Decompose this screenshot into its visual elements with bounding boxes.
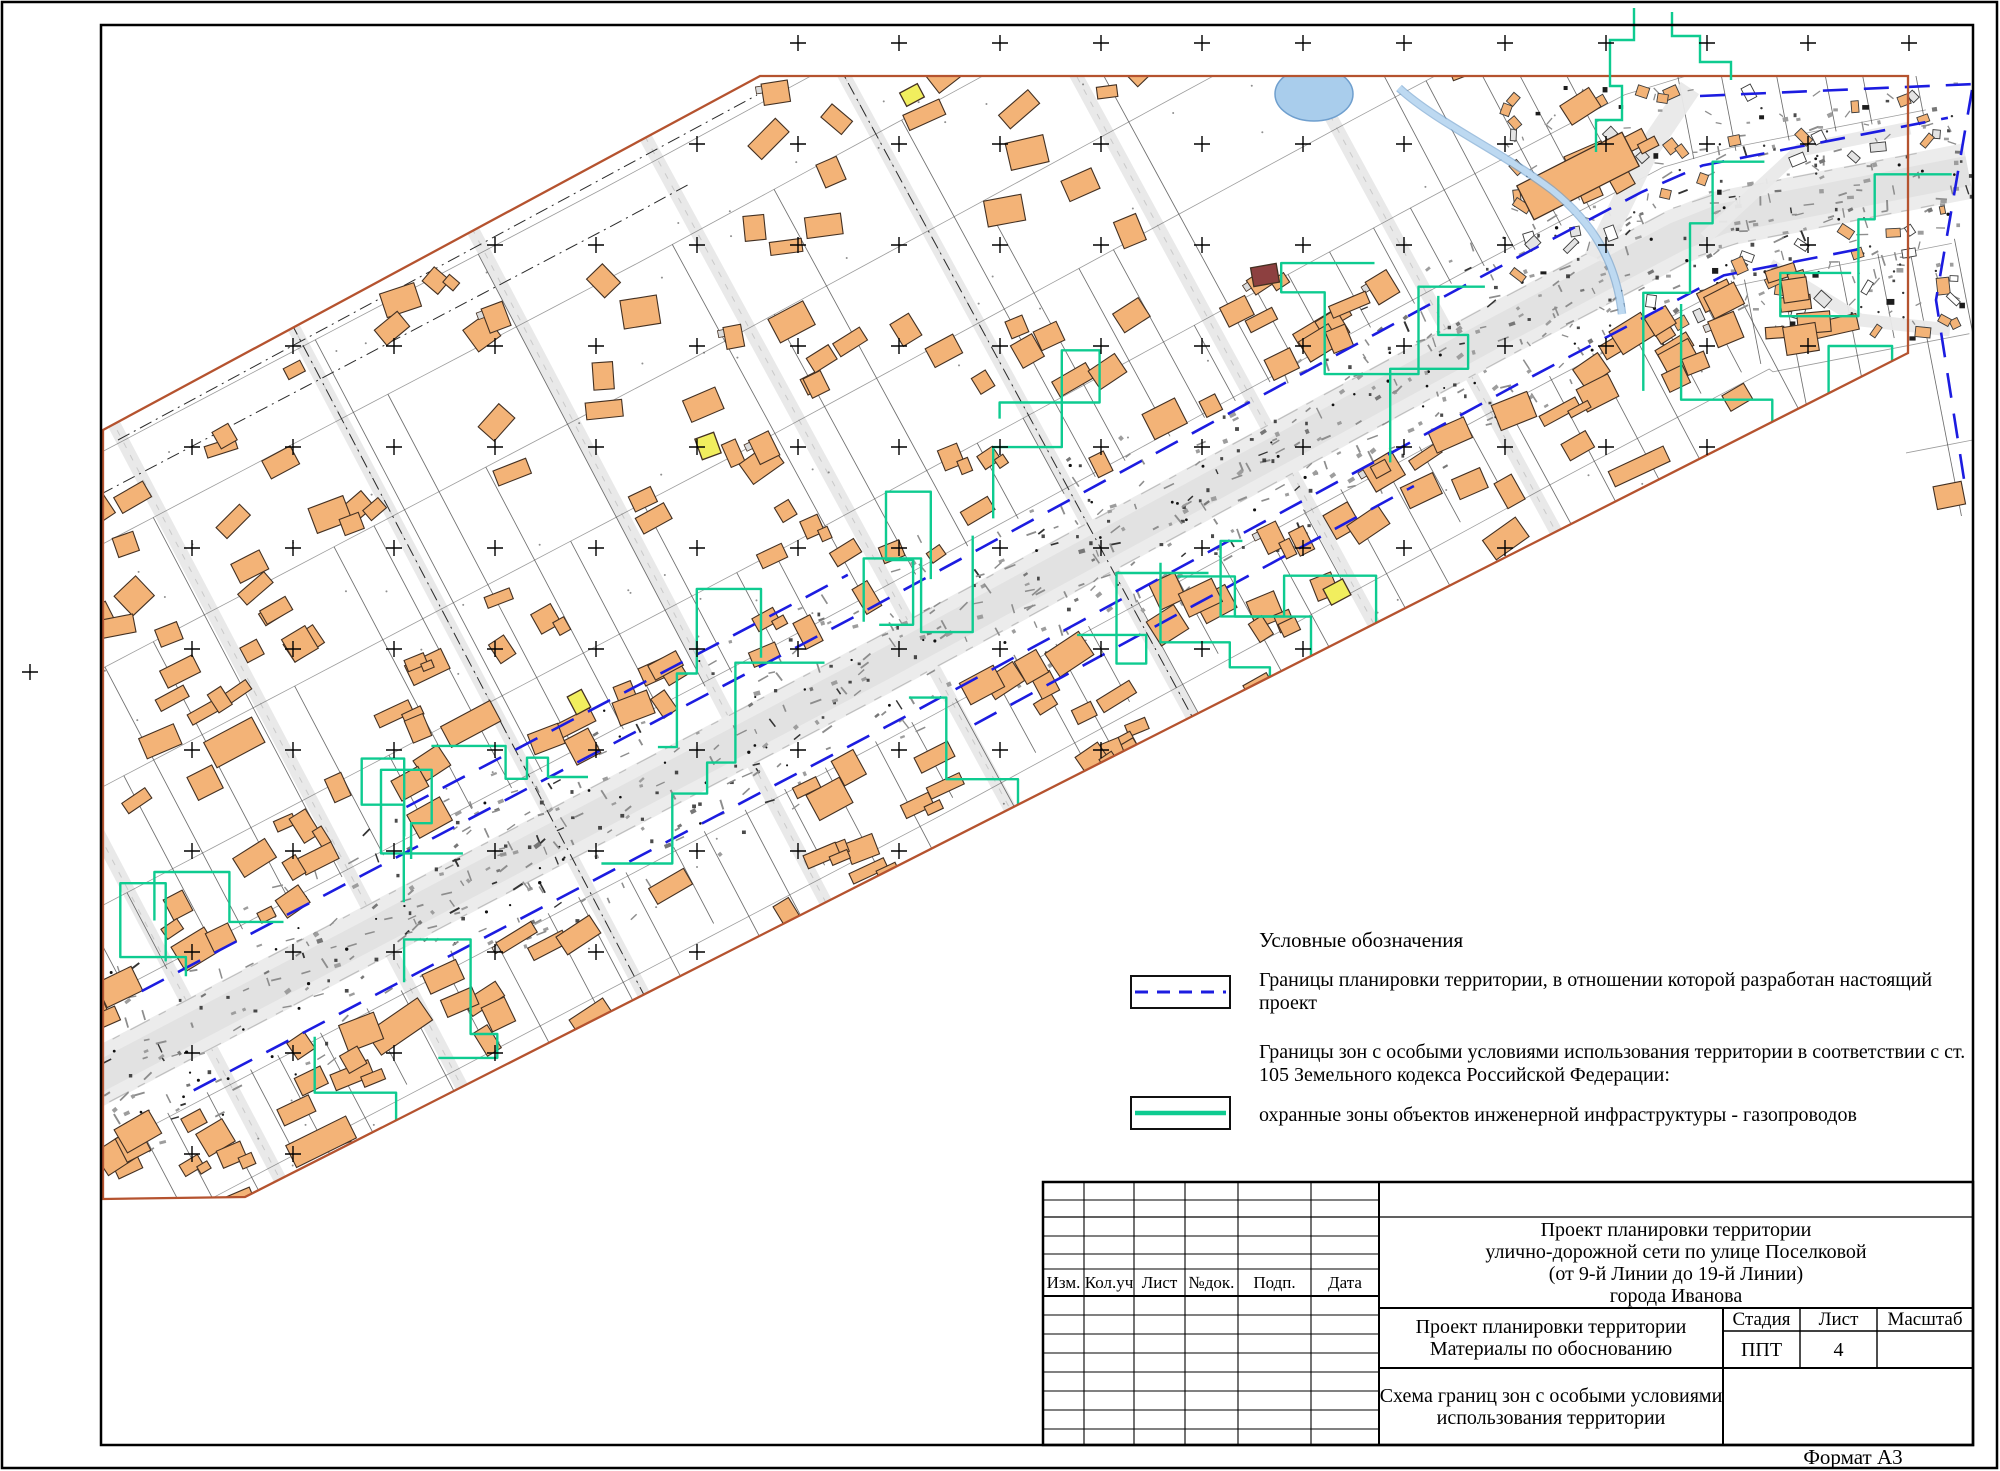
building [1217, 691, 1254, 726]
building [728, 1027, 776, 1059]
titleblock-col-podp: Подп. [1238, 1271, 1311, 1295]
building [1396, 808, 1429, 843]
titleblock-scale-label: Масштаб [1877, 1308, 1973, 1331]
building [468, 1196, 509, 1228]
building [1243, 673, 1279, 709]
legend-swatch-planning-boundary [1130, 975, 1231, 1009]
project-title-line: города Иванова [1610, 1285, 1742, 1307]
building [914, 741, 955, 773]
building [441, 700, 501, 747]
building [1783, 322, 1820, 355]
building [1608, 446, 1670, 487]
building [153, 1241, 207, 1287]
doc-type-line: Материалы по обоснованию [1430, 1338, 1672, 1360]
building [2, 849, 48, 893]
building [926, 545, 946, 564]
building [1395, 835, 1427, 868]
building [1650, 656, 1681, 689]
building [122, 788, 152, 814]
format-note: Формат А3 [1758, 1446, 1948, 1468]
building [1850, 710, 1882, 742]
building [287, 1032, 315, 1060]
building [844, 834, 879, 865]
building [456, 1159, 480, 1179]
building [806, 345, 837, 373]
building [1612, 712, 1654, 740]
building [294, 1066, 328, 1096]
building [1519, 832, 1563, 869]
building [753, 1303, 775, 1326]
building [1325, 838, 1361, 860]
building [922, 918, 967, 954]
building [46, 911, 75, 941]
building [1211, 717, 1251, 749]
building [217, 1253, 241, 1275]
building [748, 118, 789, 159]
gas-zone-zigzag [1672, 12, 1731, 80]
titleblock-doc-type: Проект планировки территории Материалы п… [1379, 1308, 1723, 1368]
building [910, 1217, 953, 1255]
building [114, 481, 152, 513]
building [1861, 673, 1904, 709]
building [756, 543, 787, 568]
building [773, 898, 801, 929]
building [266, 1313, 303, 1346]
building [1780, 701, 1807, 734]
building [922, 49, 968, 94]
building [164, 1225, 205, 1261]
building [816, 156, 846, 188]
building [204, 717, 265, 768]
building [1561, 431, 1595, 461]
building [739, 1236, 774, 1281]
building [800, 513, 832, 547]
building [960, 496, 995, 525]
building [984, 194, 1026, 227]
building [620, 295, 661, 329]
building [422, 264, 459, 301]
building [1452, 468, 1489, 500]
building [282, 1405, 307, 1436]
building [155, 685, 189, 711]
building [1332, 895, 1363, 921]
building [1398, 619, 1471, 670]
building [349, 1292, 385, 1323]
building [1343, 654, 1384, 688]
building [768, 301, 815, 343]
building [1877, 40, 1909, 69]
titleblock-stage-label: Стадия [1723, 1308, 1800, 1331]
building [1847, 548, 1867, 564]
building [1765, 326, 1784, 339]
building [1264, 348, 1299, 381]
building [755, 80, 790, 106]
building [1898, 662, 1935, 697]
building [1113, 298, 1151, 333]
building [1449, 859, 1513, 883]
building [821, 104, 853, 135]
building [1419, 776, 1454, 810]
building [379, 283, 421, 318]
building [174, 1223, 216, 1256]
building [233, 838, 277, 877]
building [890, 313, 922, 346]
building [992, 865, 1023, 889]
building [1360, 661, 1403, 703]
building [651, 690, 678, 718]
building [1826, 469, 1867, 505]
building [592, 362, 614, 391]
building [852, 581, 882, 615]
building [1758, 722, 1792, 754]
building [1026, 922, 1088, 975]
building [804, 213, 843, 238]
building [161, 919, 184, 940]
building [1552, 575, 1580, 602]
legend-item-text: Границы планировки территории, в отношен… [1259, 969, 1979, 992]
building [999, 90, 1040, 129]
titleblock-col-ndok: №док. [1185, 1271, 1238, 1295]
building [1609, 681, 1633, 704]
building [374, 311, 409, 345]
building [1096, 680, 1136, 712]
building [588, 1090, 640, 1142]
building [633, 1075, 659, 1100]
doc-type-line: Проект планировки территории [1416, 1316, 1687, 1338]
building [1555, 760, 1605, 812]
building [604, 1195, 639, 1224]
building [557, 1333, 591, 1366]
building [925, 334, 962, 367]
building [1125, 0, 1161, 35]
building [791, 1027, 821, 1055]
building [1347, 505, 1390, 544]
building [277, 1095, 316, 1126]
building [981, 43, 1022, 69]
building [1328, 683, 1364, 718]
building [478, 404, 515, 441]
building [1514, 842, 1533, 870]
titleblock-col-koluch: Кол.уч [1084, 1271, 1134, 1295]
building [1811, 718, 1840, 741]
sheet-name-line: использования территории [1437, 1407, 1666, 1429]
building [1792, 473, 1817, 501]
building [978, 804, 1038, 862]
building [1476, 678, 1503, 708]
building [711, 1023, 756, 1057]
legend-section-text: Границы зон с особыми условиями использо… [1259, 1041, 1979, 1064]
building [1722, 383, 1753, 411]
building [769, 970, 802, 1000]
building [1149, 572, 1186, 610]
building [674, 1028, 705, 1058]
titleblock-project-title: Проект планировки территории улично-доро… [1379, 1217, 1973, 1308]
building [1070, 1034, 1096, 1062]
building [532, 1094, 558, 1124]
building [1426, 625, 1464, 663]
building [163, 890, 193, 920]
building [798, 1030, 834, 1072]
special-building [695, 432, 721, 460]
building [967, 854, 1003, 886]
planning-boundary-line-icon [1132, 977, 1229, 1007]
building [1857, 646, 1884, 677]
building [649, 868, 693, 904]
building [1509, 598, 1549, 636]
building [1122, 57, 1151, 86]
building [717, 324, 745, 350]
building [1483, 517, 1530, 560]
building [1550, 801, 1596, 853]
building [937, 441, 972, 479]
building [1722, 644, 1748, 670]
building [577, 1170, 619, 1207]
building [417, 1193, 460, 1230]
building [1809, 715, 1843, 742]
building [1701, 450, 1726, 473]
building [1720, 536, 1768, 578]
project-title-line: Проект планировки территории [1541, 1219, 1812, 1241]
building [743, 214, 766, 241]
building [1005, 315, 1029, 339]
building [373, 1303, 406, 1338]
building [585, 399, 623, 419]
building [1517, 766, 1549, 793]
building [1457, 631, 1509, 676]
building [1701, 43, 1763, 75]
building [319, 1327, 366, 1371]
legend-item-text: проект [1259, 992, 1979, 1015]
building [9, 864, 46, 887]
building [1937, 519, 1970, 539]
titleblock-sheet-name: Схема границ зон с особыми условиями исп… [1379, 1368, 1723, 1445]
gas-zone-line-icon [1132, 1098, 1229, 1128]
building [1642, 642, 1669, 668]
building [774, 500, 797, 523]
building [24, 1019, 63, 1047]
building [1623, 560, 1652, 593]
building [971, 370, 995, 394]
building [1112, 919, 1153, 941]
drawing-sheet: Условные обозначения Границы планировки … [0, 0, 2000, 1471]
building [286, 1116, 357, 1167]
building [1428, 417, 1472, 453]
special-building [1251, 263, 1280, 286]
project-title-line: улично-дорожной сети по улице Поселковой [1485, 1241, 1866, 1263]
building [179, 1152, 211, 1181]
building [1810, 443, 1840, 458]
building [55, 930, 98, 969]
titleblock-list-label: Лист [1800, 1308, 1877, 1331]
legend-section-text: 105 Земельного кодекса Российской Федера… [1259, 1064, 1979, 1087]
building [671, 1199, 707, 1234]
building [69, 643, 88, 661]
building [1573, 680, 1606, 711]
building [219, 1385, 251, 1403]
building [605, 1176, 650, 1204]
building [1507, 34, 1550, 65]
legend-item-planning-boundary: Границы планировки территории, в отношен… [1259, 969, 1979, 1015]
building [925, 961, 961, 992]
building [1247, 753, 1282, 782]
building [0, 784, 26, 816]
building [1061, 168, 1100, 202]
building [424, 1214, 463, 1238]
building [3, 1012, 47, 1051]
legend-title: Условные обозначения [1259, 928, 1463, 953]
building [187, 765, 223, 800]
building [1911, 687, 1948, 722]
building [1096, 85, 1118, 99]
special-building [900, 84, 925, 107]
titleblock-col-list: Лист [1134, 1271, 1185, 1295]
building [1113, 214, 1146, 249]
building [1119, 819, 1150, 846]
building [776, 992, 820, 1032]
building [1989, 708, 2000, 729]
building [1596, 580, 1626, 611]
building [683, 387, 724, 422]
building [1466, 749, 1510, 778]
building [0, 999, 25, 1028]
building [544, 1364, 570, 1382]
building [493, 458, 531, 486]
building [1643, 860, 1675, 891]
building [960, 945, 1025, 982]
building [49, 661, 75, 687]
building [1822, 654, 1865, 697]
building [160, 655, 201, 688]
building [1702, 311, 1744, 350]
building [487, 1259, 512, 1290]
titleblock-list-value: 4 [1800, 1331, 1877, 1368]
building [283, 360, 305, 379]
building [432, 1349, 471, 1389]
legend-section-zones: Границы зон с особыми условиями использо… [1259, 1041, 1979, 1087]
building [1780, 429, 1809, 461]
building [272, 1367, 304, 1388]
building [1039, 824, 1078, 857]
building [1805, 576, 1848, 620]
building [216, 504, 250, 538]
building [1142, 398, 1187, 440]
building [1670, 516, 1704, 542]
building [404, 1128, 446, 1166]
building [645, 1099, 686, 1133]
building [181, 1109, 207, 1133]
building [1412, 880, 1449, 910]
building [1522, 635, 1549, 662]
building [155, 622, 183, 648]
building [114, 576, 154, 616]
building [891, 882, 935, 920]
titleblock-col-izm: Изм. [1043, 1271, 1084, 1295]
building [1225, 733, 1253, 766]
building [1005, 135, 1049, 171]
legend-item-gas-zone: охранные зоны объектов инженерной инфрас… [1259, 1104, 1979, 1127]
building [504, 1280, 536, 1301]
building [620, 1028, 648, 1055]
building [1088, 353, 1127, 389]
building [262, 446, 300, 479]
building [422, 960, 464, 995]
titleblock-stage-value: ППТ [1723, 1331, 1800, 1368]
project-title-line: (от 9-й Линии до 19-й Линии) [1549, 1263, 1803, 1285]
building [1781, 277, 1809, 303]
building [1148, 839, 1174, 866]
building [1781, 670, 1807, 696]
building [1161, 935, 1195, 957]
building [849, 1029, 875, 1055]
building [260, 596, 293, 624]
building [112, 531, 139, 557]
legend-swatch-gas-zone [1130, 1096, 1231, 1130]
building [1203, 903, 1226, 925]
building [1076, 793, 1121, 831]
legend-item-text: охранные зоны объектов инженерной инфрас… [1259, 1104, 1979, 1127]
building [1972, 570, 1995, 589]
building [1707, 497, 1740, 530]
building [1903, 709, 1959, 754]
building [1721, 41, 1757, 68]
building [1777, 530, 1817, 559]
titleblock-scale-value [1877, 1331, 1973, 1368]
building [1491, 617, 1539, 666]
building [587, 264, 621, 298]
building [472, 1227, 510, 1273]
sheet-name-line: Схема границ зон с особыми условиями [1380, 1385, 1723, 1407]
building [139, 724, 182, 759]
building [1933, 481, 1966, 509]
building [453, 1370, 490, 1405]
building [822, 938, 845, 962]
building [531, 601, 571, 643]
building [722, 1035, 754, 1066]
building [1783, 776, 1809, 801]
building [0, 798, 33, 834]
building [1040, 782, 1079, 809]
building [1045, 631, 1094, 677]
titleblock-col-data: Дата [1311, 1271, 1379, 1295]
building [1473, 594, 1505, 621]
building [1853, 466, 1890, 501]
building [1071, 701, 1097, 724]
building [997, 930, 1028, 957]
